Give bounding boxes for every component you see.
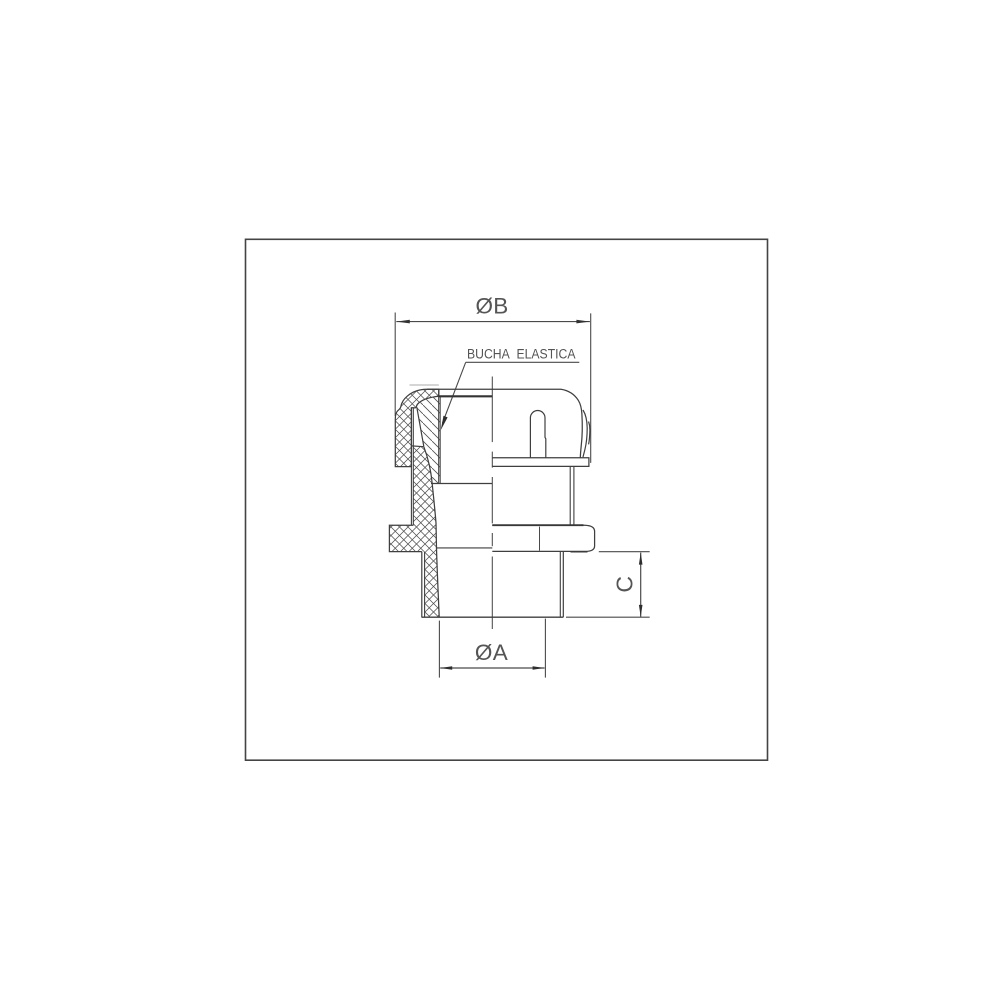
svg-text:C: C (612, 576, 638, 593)
svg-text:ØA: ØA (475, 640, 508, 665)
svg-text:ØB: ØB (475, 294, 508, 319)
svg-text:BUCHA ELASTICA: BUCHA ELASTICA (467, 347, 576, 362)
